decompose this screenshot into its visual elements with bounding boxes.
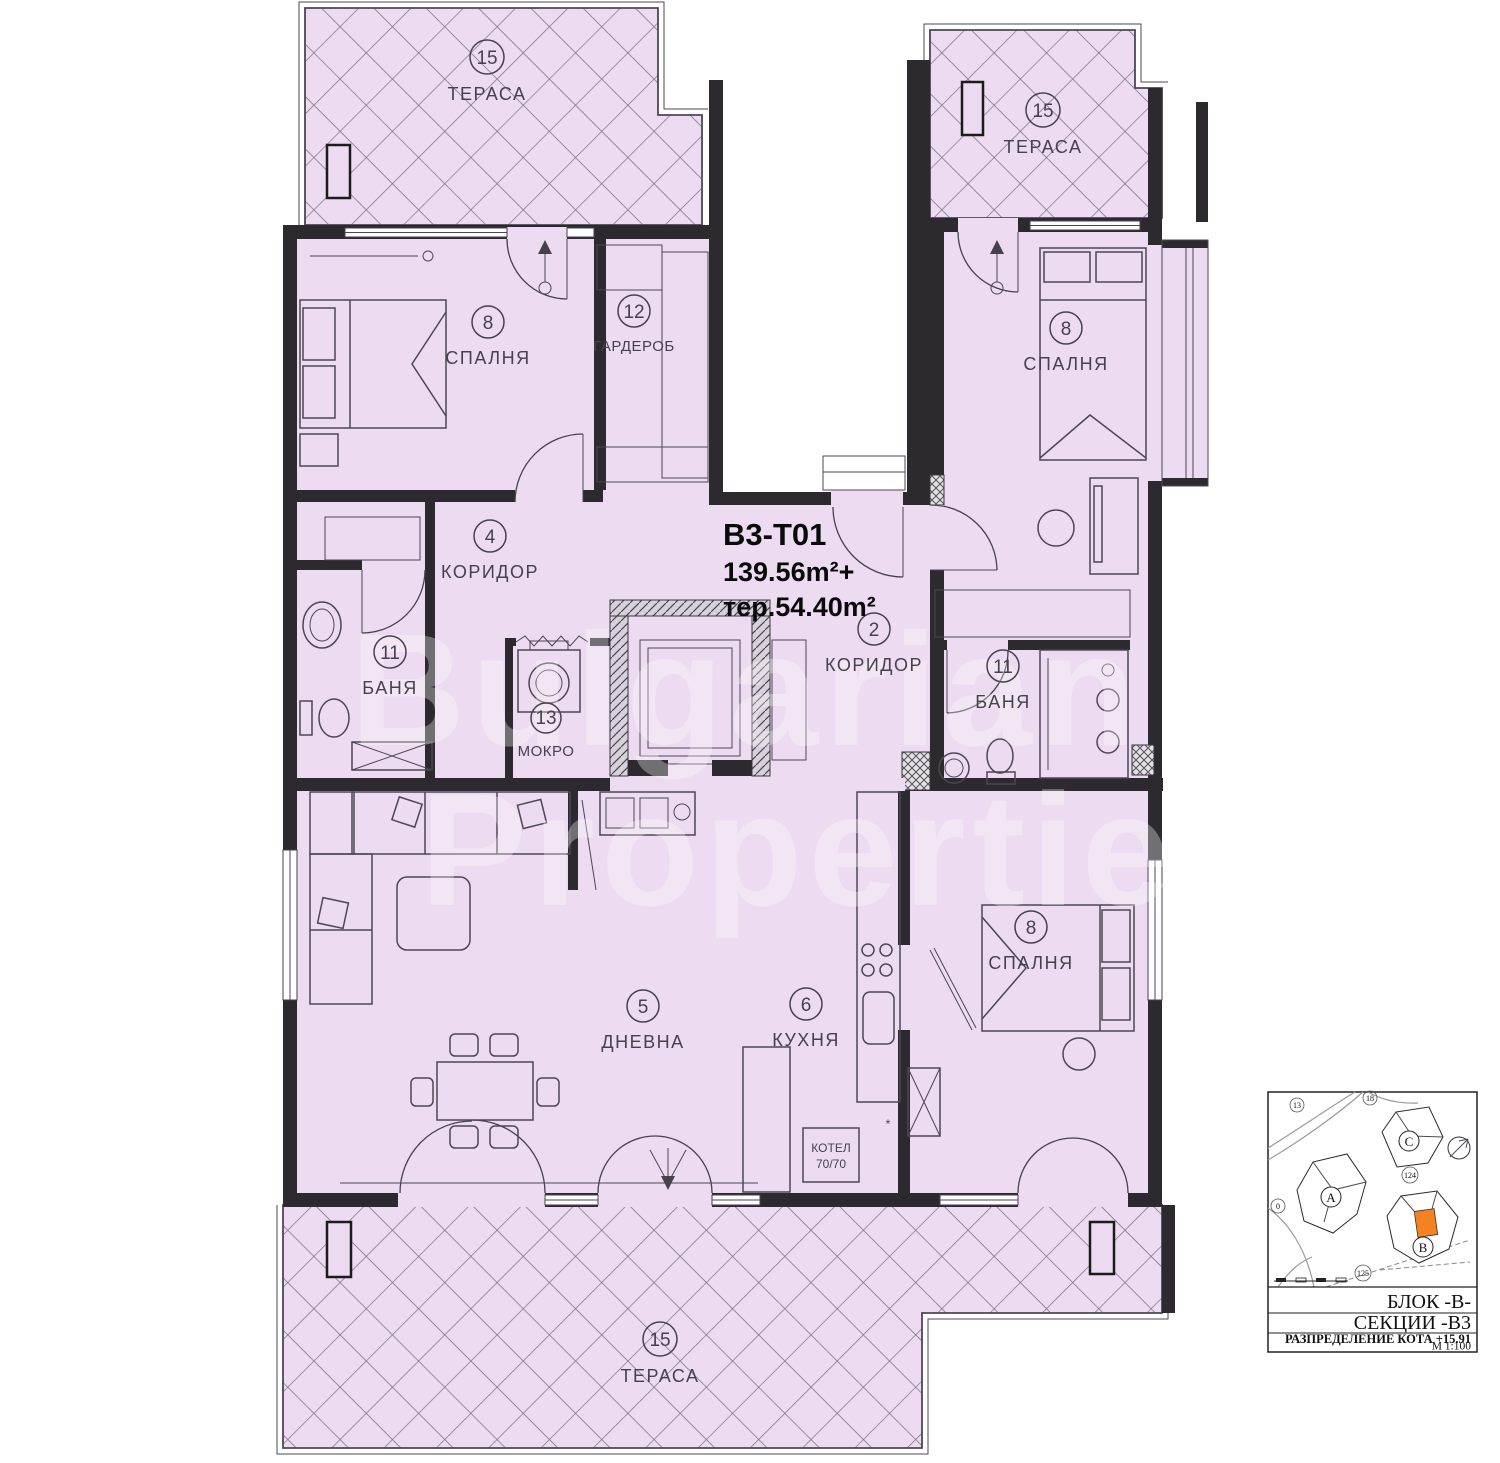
planter-box <box>1090 1222 1114 1274</box>
planter-box <box>327 1222 351 1277</box>
room-number: 11 <box>993 657 1013 678</box>
watermark-line2: Properties <box>420 760 1271 939</box>
map-section-label: СЕКЦИИ -В3 <box>1354 1312 1471 1334</box>
room-name: ТЕРАСА <box>447 84 526 104</box>
highlighted-unit <box>1414 1209 1437 1238</box>
boiler-label-line1: КОТЕЛ <box>811 1141 850 1155</box>
room-name: КУХНЯ <box>772 1030 840 1050</box>
room-name: СПАЛНЯ <box>988 953 1073 973</box>
room-number: 15 <box>649 1330 670 1351</box>
room-name: КОРИДОР <box>825 655 923 675</box>
unit-code: B3-T01 <box>723 517 826 552</box>
watermark-line1: Bulgarian <box>350 600 1142 779</box>
floor-plan-page: Bulgarian Properties 15 ТЕРАСА 15 ТЕРАСА… <box>0 0 1500 1463</box>
boiler-label-line2: 70/70 <box>816 1157 846 1171</box>
room-number: 6 <box>801 995 812 1016</box>
room-number: 4 <box>485 527 496 548</box>
unit-area: 139.56m²+ <box>723 557 854 587</box>
room-number: 12 <box>623 302 644 323</box>
plot-124: 124 <box>1404 1171 1416 1180</box>
building-c-label: С <box>1405 1134 1414 1149</box>
room-name: БАНЯ <box>975 692 1030 712</box>
room-number: 15 <box>1032 101 1053 122</box>
terrace-top-left <box>299 2 708 225</box>
room-number: 8 <box>1061 319 1072 340</box>
map-block-label: БЛОК -В- <box>1387 1291 1471 1313</box>
room-number: 5 <box>638 997 649 1018</box>
room-name: ГАРДЕРОБ <box>593 338 674 355</box>
room-name: ТЕРАСА <box>620 1366 699 1386</box>
room-number: 11 <box>380 643 400 664</box>
room-name: БАНЯ <box>362 678 417 698</box>
watermark: Bulgarian Properties <box>350 600 1271 939</box>
room-name: СПАЛНЯ <box>445 348 530 368</box>
building-a-label: А <box>1326 1190 1336 1205</box>
kitchen-star: * <box>886 1117 891 1131</box>
planter-box <box>327 145 350 198</box>
room-name: КОРИДОР <box>441 562 539 582</box>
plot-18: 18 <box>1366 1094 1374 1103</box>
room-number: 8 <box>1026 918 1037 939</box>
plot-13: 13 <box>1293 1101 1301 1110</box>
room-number: 13 <box>535 708 556 729</box>
room-number: 15 <box>476 48 497 69</box>
map-scale-label: М 1:100 <box>1432 1341 1472 1353</box>
room-name: ДНЕВНА <box>601 1032 684 1052</box>
building-b-label: В <box>1419 1240 1428 1255</box>
floor-plan-drawing: Bulgarian Properties 15 ТЕРАСА 15 ТЕРАСА… <box>0 0 1500 1463</box>
room-number: 8 <box>483 313 494 334</box>
room-name: СПАЛНЯ <box>1023 354 1108 374</box>
planter-box <box>962 82 983 135</box>
terrace-area: тер.54.40m² <box>723 592 876 622</box>
room-number: 2 <box>869 620 880 641</box>
plot-0: 0 <box>1276 1202 1280 1211</box>
room-name: ТЕРАСА <box>1003 137 1082 157</box>
room-name: МОКРО <box>518 743 575 760</box>
plot-125: 125 <box>1357 1269 1369 1278</box>
site-map: А С В 13 18 124 125 0 <box>1268 1091 1477 1353</box>
